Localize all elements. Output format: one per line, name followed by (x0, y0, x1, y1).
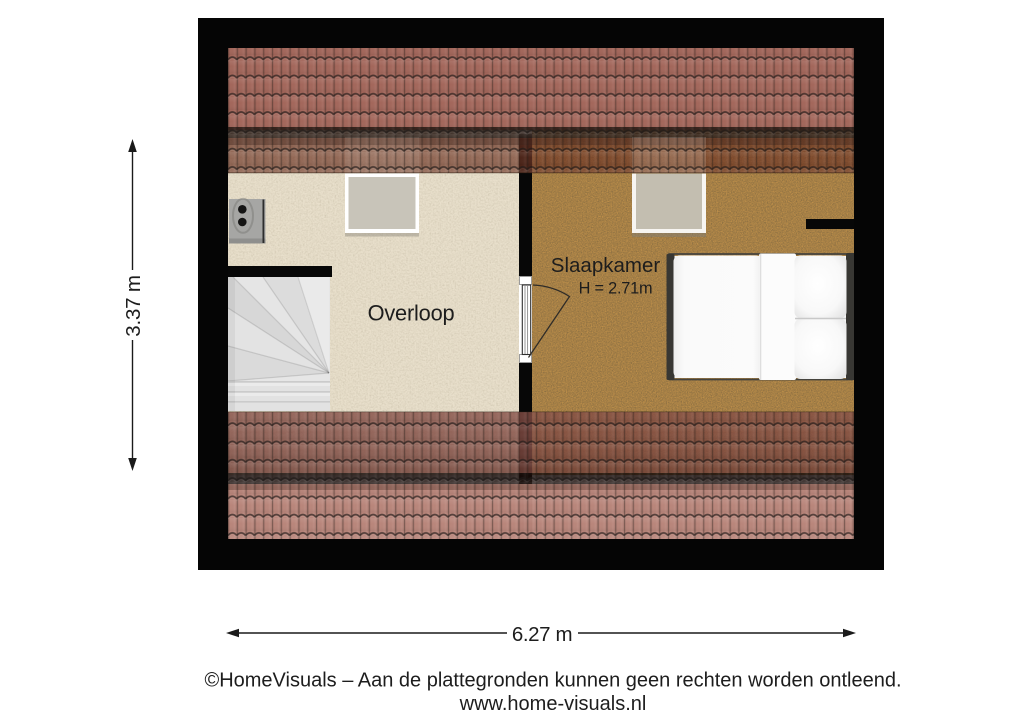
svg-text:3.37 m: 3.37 m (122, 275, 145, 336)
svg-text:H = 2.71m: H = 2.71m (579, 280, 653, 298)
svg-text:©HomeVisuals – Aan de plattegr: ©HomeVisuals – Aan de plattegronden kunn… (204, 670, 901, 692)
svg-text:Overloop: Overloop (368, 300, 455, 325)
svg-text:Slaapkamer: Slaapkamer (551, 254, 661, 277)
svg-text:6.27 m: 6.27 m (512, 623, 572, 646)
svg-text:www.home-visuals.nl: www.home-visuals.nl (459, 693, 647, 715)
